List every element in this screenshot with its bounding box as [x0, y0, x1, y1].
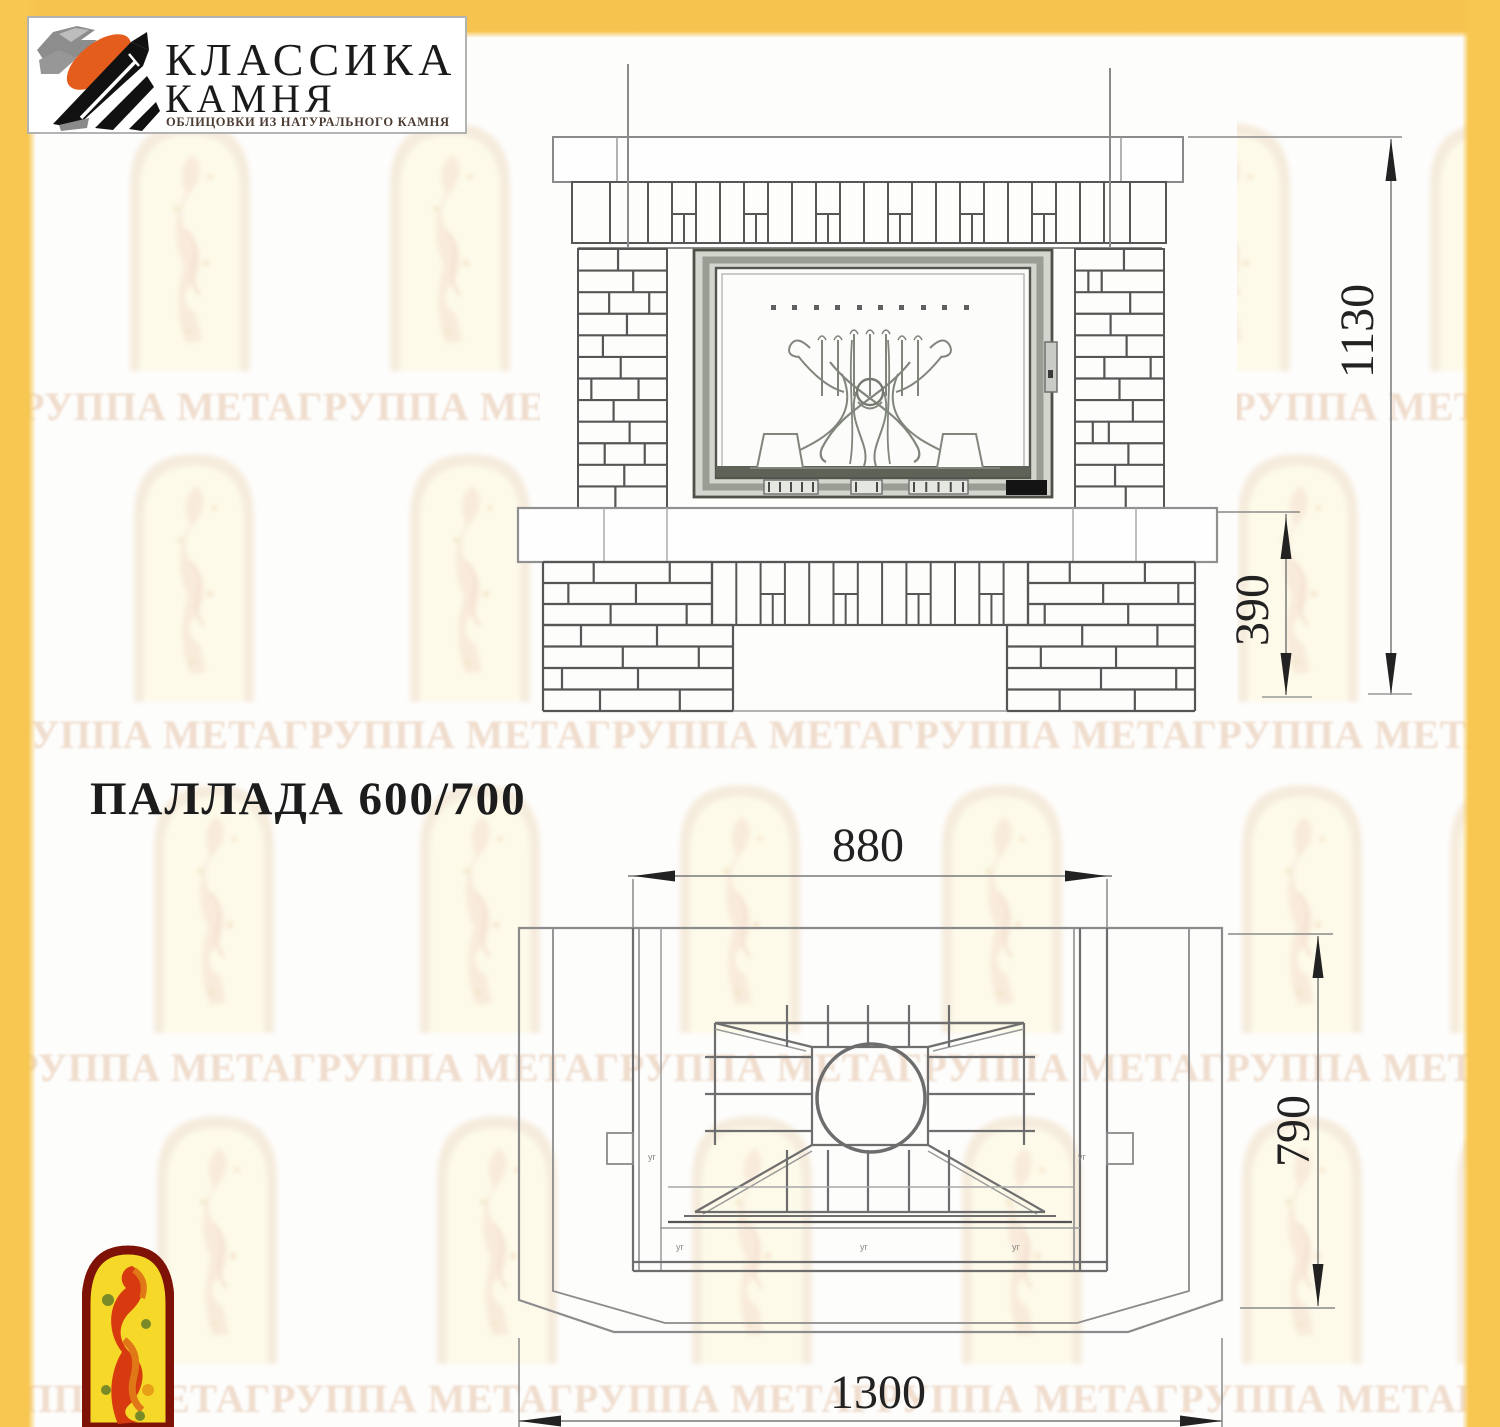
svg-text:1300: 1300 [830, 1366, 926, 1419]
svg-text:уг: уг [860, 1242, 869, 1252]
svg-text:1130: 1130 [1331, 284, 1384, 378]
svg-text:уг: уг [676, 1242, 685, 1252]
svg-text:790: 790 [1267, 1095, 1320, 1167]
svg-text:уг: уг [648, 1152, 657, 1162]
svg-text:ОБЛИЦОВКИ ИЗ НАТУРАЛЬНОГО КАМН: ОБЛИЦОВКИ ИЗ НАТУРАЛЬНОГО КАМНЯ [166, 115, 450, 129]
svg-text:уг: уг [1012, 1242, 1021, 1252]
svg-text:880: 880 [832, 819, 904, 872]
svg-text:уг: уг [1078, 1152, 1087, 1162]
svg-text:390: 390 [1226, 574, 1279, 646]
